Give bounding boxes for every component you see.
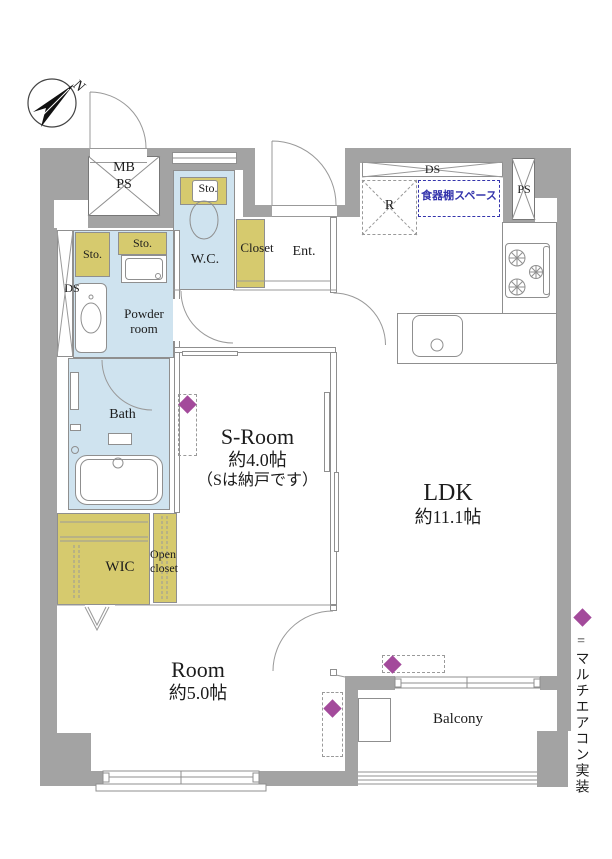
- bath-label: Bath: [95, 407, 150, 424]
- sroom-line2: 約4.0帖: [228, 450, 287, 470]
- bedroom-line1: Room: [171, 657, 225, 682]
- dish-shelf-label: 食器棚スペース: [418, 190, 500, 203]
- ldk-label: LDK 約11.1帖: [392, 479, 504, 529]
- folding-door: [85, 607, 109, 630]
- bedroom-label: Room 約5.0帖: [140, 657, 256, 705]
- floor-plan: N MB PS PS DS DS R 食器棚スペース Sto. Sto. Sto…: [0, 0, 612, 859]
- balcony-label: Balcony: [408, 711, 508, 729]
- closet-label: Closet: [234, 240, 280, 255]
- sroom-label: S-Room 約4.0帖 （Sは納戸です）: [175, 424, 340, 491]
- balcony-hatch: [358, 772, 537, 784]
- meter-box-label: MB PS: [88, 160, 160, 193]
- storage-a-label: Sto.: [75, 247, 110, 261]
- storage-b-label: Sto.: [118, 236, 167, 250]
- wic-label: WIC: [85, 559, 155, 577]
- pipe-space-label: PS: [510, 182, 538, 196]
- entrance-label: Ent.: [282, 244, 326, 261]
- duct-top-label: DS: [362, 162, 503, 176]
- meter-box-line1: MB: [113, 160, 135, 175]
- powder-room-label: Powder room: [108, 306, 180, 337]
- ldk-line2: 約11.1帖: [415, 507, 482, 527]
- sroom-line1: S-Room: [221, 424, 294, 449]
- stove-burners: [509, 250, 543, 295]
- open-closet-label: Open closet: [150, 547, 196, 575]
- refrigerator-label: R: [362, 198, 417, 215]
- powder-line1: Powder: [124, 306, 164, 321]
- bedroom-line2: 約5.0帖: [169, 683, 228, 703]
- duct-left-label: DS: [52, 281, 92, 295]
- ldk-line1: LDK: [423, 480, 472, 506]
- meter-box-line2: PS: [116, 177, 132, 192]
- storage-wc-label: Sto.: [190, 181, 226, 195]
- wc-label: W.C.: [180, 252, 230, 269]
- open-closet-line1: Open: [150, 547, 176, 561]
- sroom-line3: （Sは納戸です）: [197, 472, 318, 489]
- powder-line2: room: [130, 321, 157, 336]
- legend-text: =マルチエアコン実装: [572, 632, 589, 797]
- open-closet-line2: closet: [150, 561, 178, 575]
